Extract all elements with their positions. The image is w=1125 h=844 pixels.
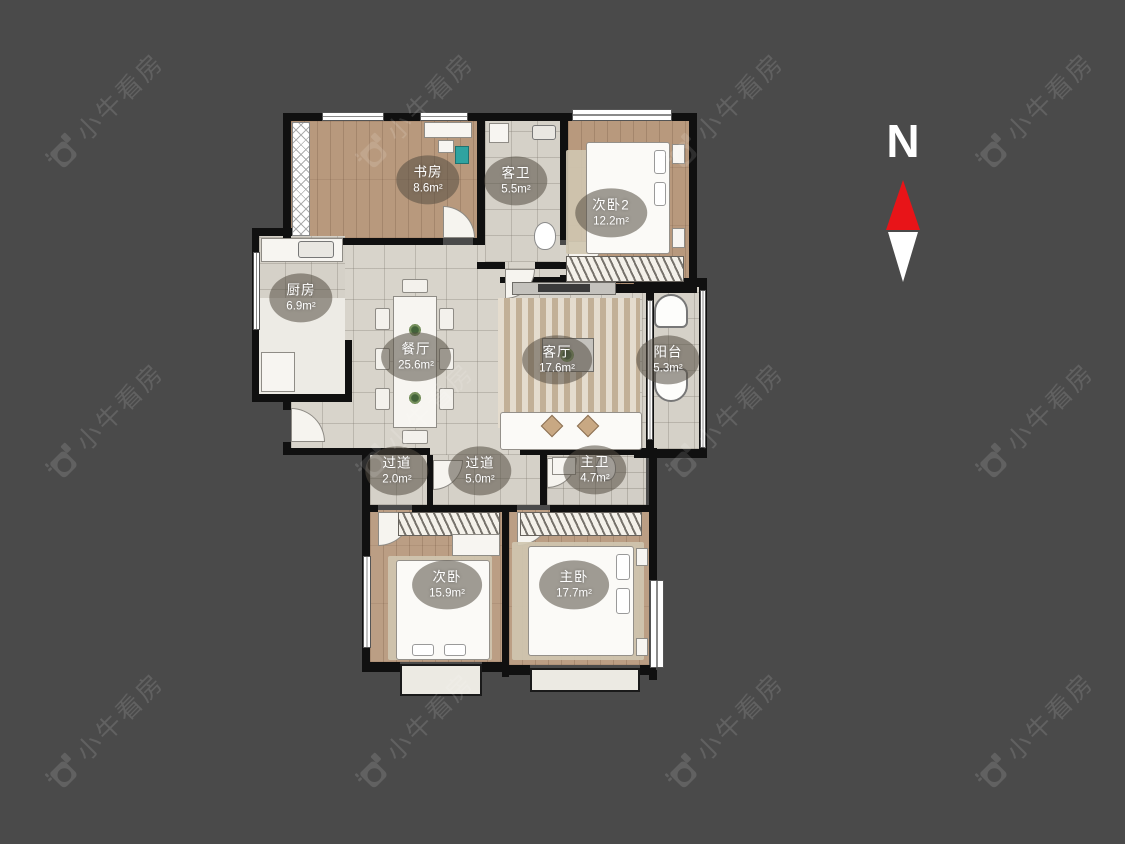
compass: N [868,118,938,291]
compass-north-label: N [868,118,938,164]
master-nightstand [636,548,648,566]
window [363,556,371,648]
wall-segment [649,670,657,680]
study-shelf [292,122,310,236]
wall-segment [502,665,530,675]
room-name: 客卫 [501,165,530,182]
wall-segment [535,262,568,269]
room-label-bedroom-1: 次卧15.9m² [412,560,482,609]
study-decor [455,146,469,164]
bedroom-1-pillow [412,644,434,656]
room-area: 6.9m² [286,299,315,313]
wall-segment [550,505,649,512]
wall-segment [649,448,657,580]
wall-segment [362,662,400,672]
floor-plan: 书房8.6m²客卫5.5m²次卧212.2m²厨房6.9m²餐厅25.6m²客厅… [0,0,1125,844]
room-name: 主卧 [556,569,592,586]
bath-washer [489,123,509,143]
room-area: 17.6m² [539,361,575,375]
balcony-chair [654,294,688,328]
bedroom-2-wardrobe [566,256,684,282]
dining-chair [402,279,428,293]
room-name: 厨房 [286,282,315,299]
wall-segment [482,662,502,672]
room-name: 过道 [465,455,494,472]
wall-segment [252,394,352,402]
bath-toilet [534,222,556,250]
wall-segment [283,113,291,246]
floor-plan-page: 书房8.6m²客卫5.5m²次卧212.2m²厨房6.9m²餐厅25.6m²客厅… [0,0,1125,844]
dining-chair [375,308,390,330]
room-name: 次卧 [429,569,465,586]
north-arrow-icon [881,178,925,286]
room-area: 5.0m² [465,472,494,486]
room-label-bedroom-2: 次卧212.2m² [575,188,647,237]
room-area: 2.0m² [382,472,411,486]
window [253,252,260,330]
room-area: 25.6m² [398,358,434,372]
room-area: 5.5m² [501,182,530,196]
bedroom-1-pillow [444,644,466,656]
kitchen-sink [298,241,334,258]
master-wardrobe [520,512,642,536]
room-name: 客厅 [539,344,575,361]
room-name: 主卫 [580,454,609,471]
room-name: 餐厅 [398,341,434,358]
bedroom-1-desk [452,534,500,556]
bay-window [650,580,664,668]
room-name: 阳台 [653,344,682,361]
room-label-master-bedroom: 主卧17.7m² [539,560,609,609]
master-pillow [616,554,630,580]
bedroom-1-wardrobe [398,512,500,536]
wall-segment [370,505,378,512]
bay-window [572,109,672,121]
room-area: 15.9m² [429,586,465,600]
bath-sink [532,125,556,140]
room-name: 书房 [413,164,442,181]
wall-segment [540,455,547,505]
dining-chair [375,388,390,410]
wall-segment [283,394,291,410]
master-pillow [616,588,630,614]
room-area: 8.6m² [413,181,442,195]
room-area: 12.2m² [592,214,630,228]
tv [538,284,590,292]
wall-segment [345,340,352,402]
dining-chair [439,308,454,330]
room-area: 17.7m² [556,586,592,600]
bedroom-2-nightstand [672,228,685,248]
wall-segment [477,262,505,269]
bedroom-2-pillow [654,182,666,206]
study-desk [424,122,472,138]
room-area: 4.7m² [580,471,609,485]
study-chair [438,140,454,153]
kitchen-fridge [261,352,295,392]
bay-window [530,668,640,692]
window [322,112,384,121]
sofa [500,412,642,450]
wall-segment [502,505,509,677]
room-area: 5.3m² [653,361,682,375]
master-nightstand [636,638,648,656]
room-name: 次卧2 [592,197,630,214]
wall-segment [473,238,485,245]
room-label-living-room: 客厅17.6m² [522,335,592,384]
